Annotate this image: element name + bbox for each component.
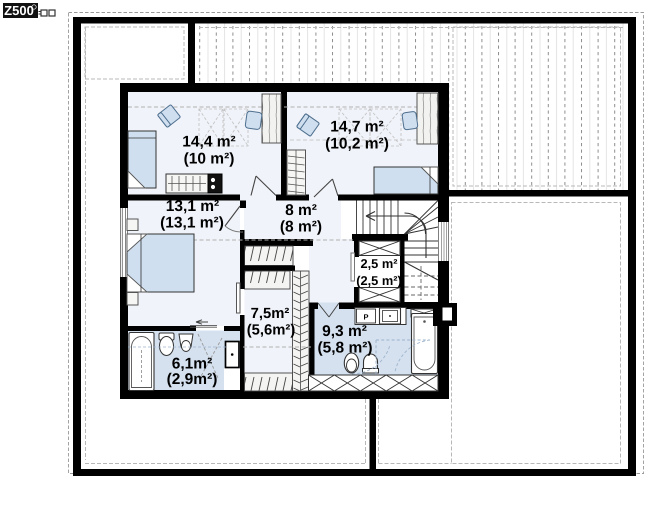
svg-text:P: P (363, 313, 368, 322)
svg-text:2,5 m²: 2,5 m² (361, 256, 398, 271)
svg-text:Z500: Z500 (4, 3, 34, 18)
svg-text:(2,9m²): (2,9m²) (167, 371, 218, 388)
svg-text:8 m²: 8 m² (285, 202, 317, 219)
svg-text:14,7 m²: 14,7 m² (330, 119, 383, 136)
svg-text:(8 m²): (8 m²) (280, 219, 322, 236)
svg-text:(13,1 m²): (13,1 m²) (160, 215, 224, 232)
svg-text:(10 m²): (10 m²) (184, 151, 235, 168)
svg-text:(5,8 m²): (5,8 m²) (317, 340, 372, 357)
svg-text:(10,2 m²): (10,2 m²) (325, 136, 389, 153)
svg-text:9,3 m²: 9,3 m² (322, 323, 367, 340)
svg-text:6,1m²: 6,1m² (172, 356, 213, 373)
svg-text:(2,5 m²): (2,5 m²) (356, 273, 402, 288)
svg-text:14,4 m²: 14,4 m² (182, 134, 235, 151)
svg-text:(5,6m²): (5,6m²) (247, 323, 296, 339)
svg-text:13,1 m²: 13,1 m² (166, 198, 219, 215)
svg-text:7,5m²: 7,5m² (251, 306, 290, 322)
